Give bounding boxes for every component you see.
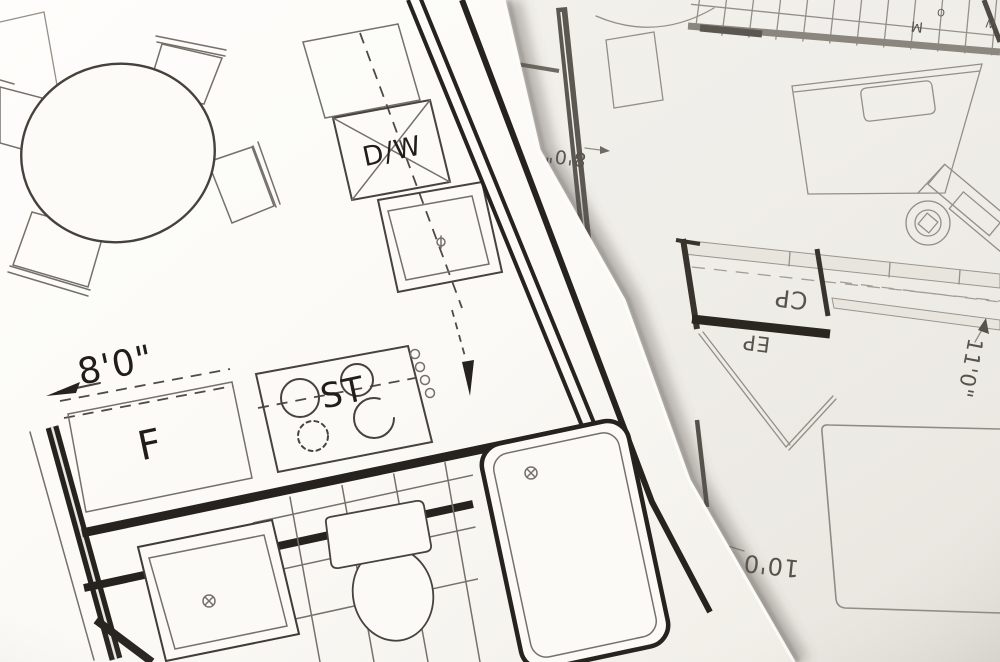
photo-vignette <box>0 0 1000 662</box>
floorplan-scene: M O W <box>0 0 1000 662</box>
blueprint-photo: M O W <box>0 0 1000 662</box>
